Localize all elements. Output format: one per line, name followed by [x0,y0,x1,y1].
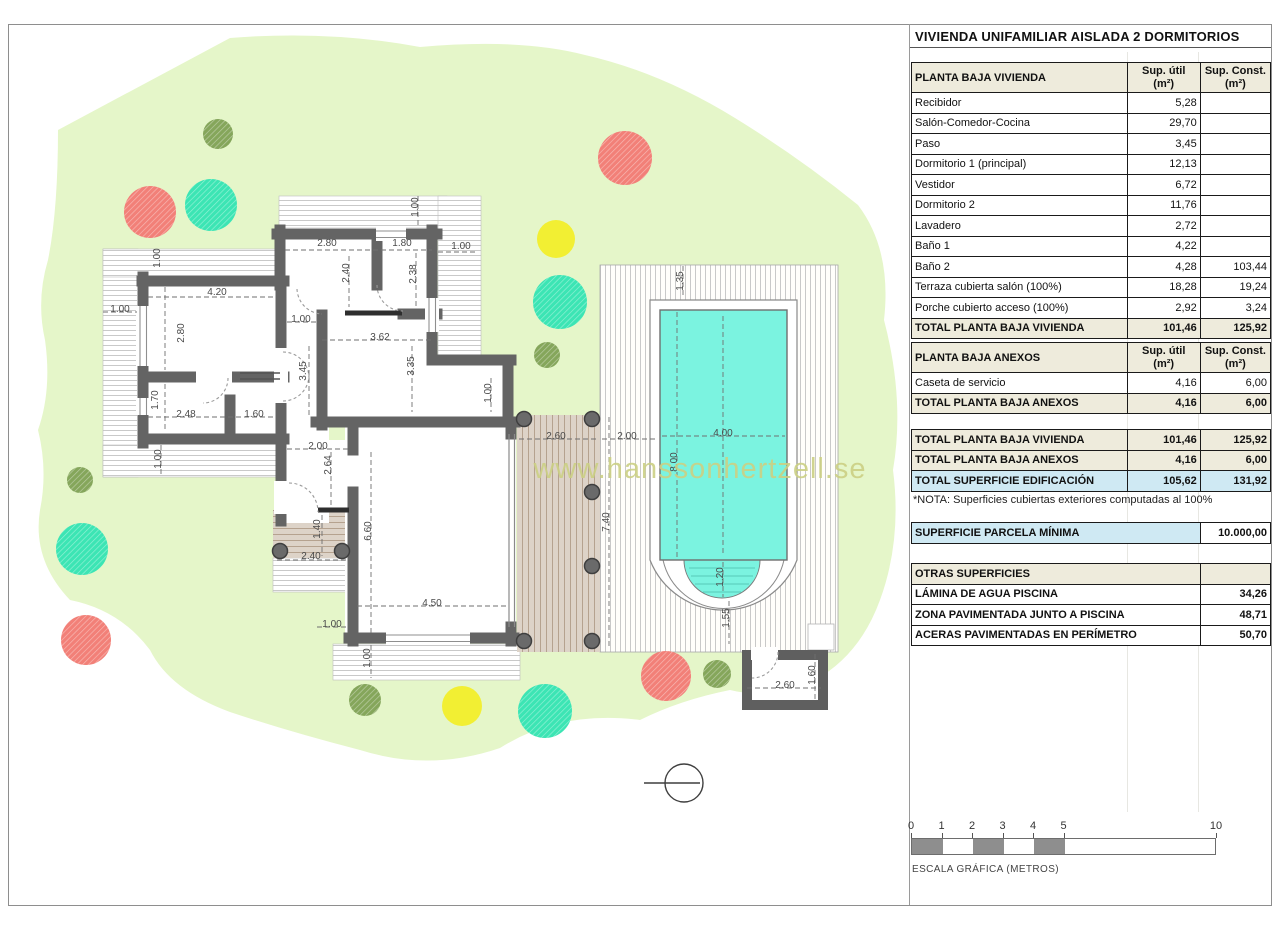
scale-tick-number: 1 [938,820,944,832]
dimension-label: 3.62 [370,332,390,343]
scale-tick-mark [1033,833,1034,838]
table-row: Terraza cubierta salón (100%)18,2819,24 [912,277,1271,298]
table-row: LÁMINA DE AGUA PISCINA34,26 [912,584,1271,605]
table-cell: Baño 2 [912,257,1128,278]
table-cell: 4,28 [1127,257,1200,278]
table-cell: 105,62 [1127,471,1200,492]
dimension-label: 1.80 [392,238,412,249]
table-cell: Lavadero [912,216,1128,237]
scale-bar-segment [973,839,1004,854]
table-total-row: TOTAL PLANTA BAJA VIVIENDA101,46125,92 [912,318,1271,339]
dimension-label: 2.00 [308,441,328,452]
dimension-label: 2.80 [317,238,337,249]
scale-bar-segment [912,839,943,854]
dimension-label: 1.00 [362,648,373,668]
table-cell: ACERAS PAVIMENTADAS EN PERÍMETRO [912,625,1201,646]
table-totals-summary: TOTAL PLANTA BAJA VIVIENDA101,46125,92TO… [911,429,1271,492]
table-cell: TOTAL PLANTA BAJA ANEXOS [912,450,1128,471]
table-cell: TOTAL PLANTA BAJA VIVIENDA [912,318,1128,339]
table-cell: 4,16 [1127,450,1200,471]
dimension-label: 1.60 [807,665,818,685]
table-cell: 12,13 [1127,154,1200,175]
table-row: Paso3,45 [912,134,1271,155]
summary-row: TOTAL PLANTA BAJA ANEXOS4,166,00 [912,450,1271,471]
page-title: VIVIENDA UNIFAMILIAR AISLADA 2 DORMITORI… [910,26,1271,48]
table-cell: 34,26 [1200,584,1270,605]
tree [349,684,381,716]
table-cell: 6,00 [1200,373,1270,394]
plan-sheet: { "title": "VIVIENDA UNIFAMILIAR AISLADA… [0,0,1280,933]
table-cell [1200,236,1270,257]
table-row: Baño 24,28103,44 [912,257,1271,278]
tree [533,275,587,329]
scale-tick-number: 2 [969,820,975,832]
table-cell: Vestidor [912,175,1128,196]
scale-tick-number: 10 [1210,820,1222,832]
scale-bar-track [911,838,1216,855]
table-cell: 6,00 [1200,450,1270,471]
dimension-label: 2.60 [775,680,795,691]
scale-bar-label: ESCALA GRÁFICA (METROS) [912,864,1059,875]
dimension-label: 2.00 [617,431,637,442]
dimension-label: 2.64 [323,455,334,475]
tree [67,467,93,493]
table-cell: Porche cubierto acceso (100%) [912,298,1128,319]
table-row: Porche cubierto acceso (100%)2,923,24 [912,298,1271,319]
table-cell: 2,92 [1127,298,1200,319]
table-cell: 4,16 [1127,373,1200,394]
summary-row: TOTAL SUPERFICIE EDIFICACIÓN105,62131,92 [912,471,1271,492]
table-cell: PLANTA BAJA ANEXOS [912,343,1128,373]
table-cell: Paso [912,134,1128,155]
dimension-label: 1.00 [153,449,164,469]
table-cell [1200,195,1270,216]
table-cell: 125,92 [1200,430,1270,451]
scale-tick-number: 4 [1030,820,1036,832]
table-cell: TOTAL PLANTA BAJA VIVIENDA [912,430,1128,451]
table-total-row: TOTAL PLANTA BAJA ANEXOS4,166,00 [912,393,1271,414]
table-cell: 29,70 [1127,113,1200,134]
table-cell [1200,216,1270,237]
table-cell: Terraza cubierta salón (100%) [912,277,1128,298]
table-cell: 19,24 [1200,277,1270,298]
table-row: ZONA PAVIMENTADA JUNTO A PISCINA48,71 [912,605,1271,626]
table-row: Lavadero2,72 [912,216,1271,237]
dimension-label: 2.40 [341,263,352,283]
table-cell: 101,46 [1127,318,1200,339]
table-header-row: OTRAS SUPERFICIES [912,564,1271,585]
dimension-label: 1.60 [244,409,264,420]
table-cell [1200,175,1270,196]
tree [518,684,572,738]
dimension-label: 4.50 [422,598,442,609]
dimension-label: 3.45 [298,361,309,381]
table-cell: 10.000,00 [1200,523,1270,544]
dimension-label: 2.80 [176,323,187,343]
table-row: Dormitorio 211,76 [912,195,1271,216]
table-cell: SUPERFICIE PARCELA MÍNIMA [912,523,1201,544]
table-cell: OTRAS SUPERFICIES [912,564,1201,585]
table-cell: LÁMINA DE AGUA PISCINA [912,584,1201,605]
dimension-label: 1.35 [675,271,686,291]
table-cell: 18,28 [1127,277,1200,298]
scale-tick-mark [1064,833,1065,838]
tree [442,686,482,726]
table-cell: 4,22 [1127,236,1200,257]
table-cell [1200,134,1270,155]
table-planta-baja-vivienda: PLANTA BAJA VIVIENDASup. útil (m²)Sup. C… [911,62,1271,339]
dimension-label: 1.00 [291,314,311,325]
north-indicator [644,764,703,802]
dimension-label: 1.20 [715,567,726,587]
tree [203,119,233,149]
table-row: ACERAS PAVIMENTADAS EN PERÍMETRO50,70 [912,625,1271,646]
dimension-label: 1.00 [410,197,421,217]
table-cell [1200,564,1270,585]
table-cell: Salón-Comedor-Cocina [912,113,1128,134]
table-row: Baño 14,22 [912,236,1271,257]
table-planta-baja-anexos: PLANTA BAJA ANEXOSSup. útil (m²)Sup. Con… [911,342,1271,414]
table-row: Recibidor5,28 [912,93,1271,114]
table-cell: 101,46 [1127,430,1200,451]
dimension-label: 6.60 [363,521,374,541]
table-cell: Baño 1 [912,236,1128,257]
site-plan-drawing: 1.002.801.801.001.002.402.384.201.002.80… [0,0,910,933]
table-cell: 11,76 [1127,195,1200,216]
scale-tick-number: 3 [999,820,1005,832]
table-row: Vestidor6,72 [912,175,1271,196]
note-text: *NOTA: Superficies cubiertas exteriores … [913,494,1273,506]
tree [537,220,575,258]
scale-tick-mark [942,833,943,838]
summary-row: TOTAL PLANTA BAJA VIVIENDA101,46125,92 [912,430,1271,451]
scale-tick-mark [972,833,973,838]
table-row: Caseta de servicio4,166,00 [912,373,1271,394]
table-cell [1200,154,1270,175]
dimension-label: 1.40 [312,519,323,539]
dimension-label: 1.55 [721,608,732,628]
table-cell: 6,00 [1200,393,1270,414]
table-cell: 50,70 [1200,625,1270,646]
table-cell: Recibidor [912,93,1128,114]
table-cell: Sup. Const. (m²) [1200,63,1270,93]
scale-tick-number: 5 [1060,820,1066,832]
scale-bar-segment [1034,839,1065,854]
table-cell: 48,71 [1200,605,1270,626]
dimension-label: 2.60 [546,431,566,442]
tree [124,186,176,238]
table-cell: 125,92 [1200,318,1270,339]
parcela-row: SUPERFICIE PARCELA MÍNIMA10.000,00 [912,523,1271,544]
scale-tick-mark [1216,833,1217,838]
table-cell: Sup. útil (m²) [1127,63,1200,93]
dimension-label: 7.40 [601,512,612,532]
table-cell: Dormitorio 1 (principal) [912,154,1128,175]
table-cell: 6,72 [1127,175,1200,196]
tree [56,523,108,575]
dimension-label: 1.00 [152,248,163,268]
table-cell: TOTAL SUPERFICIE EDIFICACIÓN [912,471,1128,492]
dimension-label: 4.00 [713,428,733,439]
covered-terrace [517,415,600,652]
scale-tick-number: 0 [908,820,914,832]
scale-tick-mark [911,833,912,838]
scale-tick-mark [1003,833,1004,838]
tree [641,651,691,701]
dimension-label: 2.48 [176,409,196,420]
dimension-label: 1.00 [110,304,130,315]
table-cell [1200,93,1270,114]
table-cell: 3,24 [1200,298,1270,319]
dimension-label: 2.38 [408,264,419,284]
table-cell: 4,16 [1127,393,1200,414]
table-cell: ZONA PAVIMENTADA JUNTO A PISCINA [912,605,1201,626]
table-otras-superficies: OTRAS SUPERFICIESLÁMINA DE AGUA PISCINA3… [911,563,1271,646]
table-cell: TOTAL PLANTA BAJA ANEXOS [912,393,1128,414]
dimension-label: 1.00 [322,619,342,630]
table-cell: Sup. útil (m²) [1127,343,1200,373]
watermark-text: www.hanssonhertzell.se [532,453,866,485]
tree [598,131,652,185]
dimension-label: 1.00 [483,383,494,403]
table-cell: 2,72 [1127,216,1200,237]
table-cell: Sup. Const. (m²) [1200,343,1270,373]
tree [185,179,237,231]
dimension-label: 1.00 [451,241,471,252]
dimension-label: 1.70 [150,390,161,410]
table-cell: 5,28 [1127,93,1200,114]
table-header-row: PLANTA BAJA ANEXOSSup. útil (m²)Sup. Con… [912,343,1271,373]
graphic-scale-bar: ESCALA GRÁFICA (METROS) 01234510 [911,820,1231,882]
table-parcela-minima: SUPERFICIE PARCELA MÍNIMA10.000,00 [911,522,1271,544]
tree [703,660,731,688]
table-cell: 131,92 [1200,471,1270,492]
table-cell: Caseta de servicio [912,373,1128,394]
dimension-label: 4.20 [207,287,227,298]
table-cell [1200,113,1270,134]
table-cell: Dormitorio 2 [912,195,1128,216]
dimension-label: 3.35 [406,356,417,376]
tree [534,342,560,368]
table-row: Dormitorio 1 (principal)12,13 [912,154,1271,175]
table-row: Salón-Comedor-Cocina29,70 [912,113,1271,134]
table-cell: 3,45 [1127,134,1200,155]
dimension-label: 2.40 [301,551,321,562]
table-header-row: PLANTA BAJA VIVIENDASup. útil (m²)Sup. C… [912,63,1271,93]
table-cell: 103,44 [1200,257,1270,278]
tree [61,615,111,665]
table-cell: PLANTA BAJA VIVIENDA [912,63,1128,93]
